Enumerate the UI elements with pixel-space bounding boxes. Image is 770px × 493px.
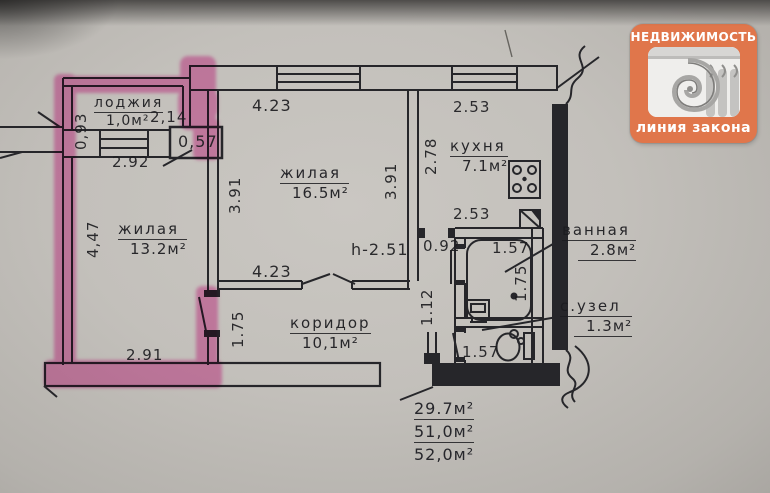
dim-157-wc: 1.57 bbox=[462, 343, 499, 361]
pen-scratch bbox=[505, 30, 512, 57]
dim-292: 2.92 bbox=[112, 153, 149, 171]
room-area: 10,1м² bbox=[290, 334, 371, 352]
dim-391-right: 3.91 bbox=[382, 163, 400, 200]
kitchen-sink-icon bbox=[520, 210, 540, 228]
room-name: жилая bbox=[280, 164, 349, 184]
dim-278: 2.78 bbox=[422, 138, 440, 175]
dim-391-left: 3.91 bbox=[226, 177, 244, 214]
dim-291: 2.91 bbox=[126, 346, 163, 364]
dim-112: 1.12 bbox=[418, 289, 436, 326]
scanned-floor-plan: лоджия 1,0м² жилая 13.2м² жилая 16.5м² к… bbox=[0, 0, 770, 493]
room-area: 1.3м² bbox=[574, 317, 632, 337]
room-label-corridor: коридор 10,1м² bbox=[290, 314, 371, 352]
washbasin-icon bbox=[467, 300, 489, 322]
dim-093: 0,93 bbox=[72, 113, 90, 150]
dim-423-top: 4.23 bbox=[252, 96, 292, 115]
dim-h251: h-2.51 bbox=[351, 240, 409, 259]
room-name: ванная bbox=[562, 221, 636, 241]
dim-175-bath: 1.75 bbox=[512, 265, 530, 302]
room-label-room1: жилая 13.2м² bbox=[118, 220, 187, 258]
room-label-room2: жилая 16.5м² bbox=[280, 164, 349, 202]
dim-175-corr: 1.75 bbox=[229, 311, 247, 348]
room-name: жилая bbox=[118, 220, 187, 240]
left-edge-lines bbox=[0, 112, 63, 158]
room-area: 7.1м² bbox=[450, 157, 508, 175]
room-area: 13.2м² bbox=[118, 240, 187, 258]
total-living-area: 29.7м² bbox=[414, 399, 474, 420]
logo-subtitle: линия закона bbox=[636, 120, 751, 136]
toilet-icon bbox=[497, 330, 535, 361]
total-area: 51,0м² bbox=[414, 422, 474, 443]
dim-423-corr: 4.23 bbox=[252, 262, 292, 281]
room-name: с.узел bbox=[560, 297, 632, 317]
agency-logo: НЕДВИЖИМОСТЬ линия закона bbox=[630, 24, 757, 143]
stove-icon bbox=[509, 161, 540, 198]
dim-092: 0.92 bbox=[423, 237, 460, 255]
wall-break-line bbox=[557, 57, 599, 88]
doorway-marks bbox=[302, 274, 355, 284]
column-capital-icon bbox=[648, 47, 740, 117]
dim-253-top: 2.53 bbox=[453, 98, 490, 116]
room-name: кухня bbox=[450, 137, 508, 157]
dim-057: 0,57 bbox=[178, 132, 218, 151]
room-label-wc: с.узел 1.3м² bbox=[560, 297, 632, 337]
room-label-kitchen: кухня 7.1м² bbox=[450, 137, 508, 175]
room-name: коридор bbox=[290, 314, 371, 334]
room-area: 2.8м² bbox=[578, 241, 636, 261]
total-overall-area: 52,0м² bbox=[414, 445, 474, 464]
dim-157-bath: 1.57 bbox=[492, 239, 529, 257]
dim-447: 4,47 bbox=[84, 221, 102, 258]
room-area: 16.5м² bbox=[280, 184, 349, 202]
area-totals: 29.7м² 51,0м² 52,0м² bbox=[414, 399, 474, 466]
room-label-bathroom: ванная 2.8м² bbox=[562, 221, 636, 261]
dim-214: 2,14 bbox=[150, 108, 187, 126]
bottom-right-wall bbox=[432, 363, 560, 386]
dim-253-mid: 2.53 bbox=[453, 205, 490, 223]
logo-title: НЕДВИЖИМОСТЬ bbox=[631, 30, 757, 44]
